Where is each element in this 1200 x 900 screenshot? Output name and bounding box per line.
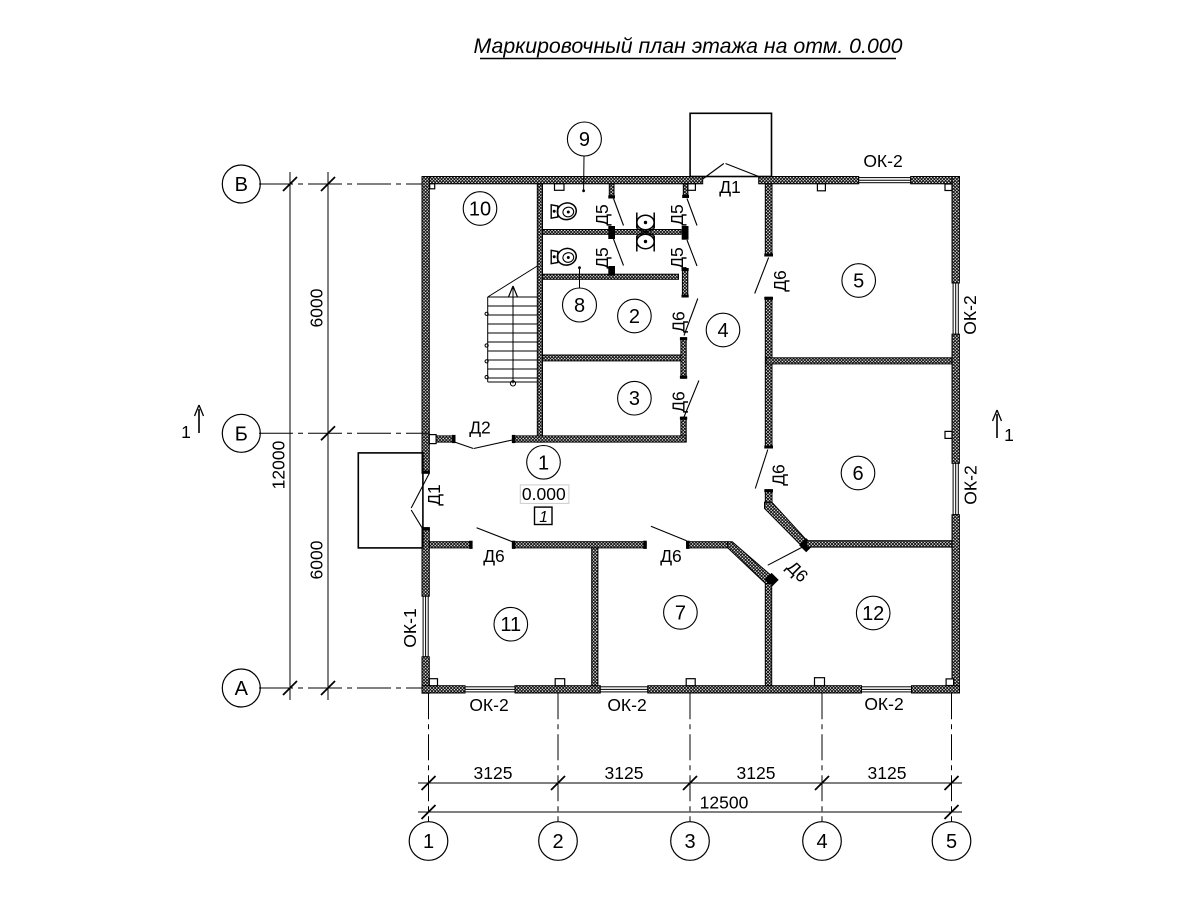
svg-text:6: 6 (852, 463, 863, 485)
svg-text:1: 1 (423, 831, 434, 853)
svg-text:ОК-2: ОК-2 (607, 695, 646, 715)
svg-text:Д6: Д6 (669, 311, 689, 333)
svg-text:4: 4 (717, 320, 728, 342)
svg-text:4: 4 (816, 831, 827, 853)
svg-text:Д5: Д5 (592, 204, 612, 226)
svg-text:Д6: Д6 (669, 391, 689, 413)
svg-text:Д2: Д2 (469, 418, 491, 438)
svg-text:Д5: Д5 (667, 204, 687, 226)
svg-text:12: 12 (862, 603, 884, 625)
svg-text:Д5: Д5 (592, 247, 612, 269)
svg-text:0.000: 0.000 (522, 484, 566, 504)
svg-text:7: 7 (675, 602, 686, 624)
svg-text:10: 10 (469, 199, 491, 221)
svg-text:Д6: Д6 (660, 546, 682, 566)
svg-text:1: 1 (538, 452, 549, 474)
svg-text:3125: 3125 (474, 763, 513, 783)
svg-text:5: 5 (946, 831, 957, 853)
svg-text:ОК-2: ОК-2 (864, 694, 903, 714)
svg-text:9: 9 (579, 129, 590, 151)
svg-text:8: 8 (574, 295, 585, 317)
svg-text:Д1: Д1 (719, 177, 741, 197)
svg-text:12500: 12500 (700, 793, 749, 813)
svg-text:Д6: Д6 (770, 270, 790, 292)
svg-text:2: 2 (629, 306, 640, 328)
svg-text:3125: 3125 (868, 763, 907, 783)
svg-text:1: 1 (1004, 425, 1014, 445)
svg-text:А: А (235, 678, 249, 700)
svg-text:Д5: Д5 (667, 247, 687, 269)
svg-text:Д6: Д6 (769, 464, 789, 486)
svg-text:3125: 3125 (737, 763, 776, 783)
svg-text:6000: 6000 (307, 540, 327, 579)
svg-text:Б: Б (235, 423, 248, 445)
svg-text:6000: 6000 (307, 288, 327, 327)
svg-text:12000: 12000 (269, 440, 289, 489)
svg-text:ОК-2: ОК-2 (961, 465, 981, 504)
svg-text:5: 5 (853, 271, 864, 293)
svg-text:Д1: Д1 (424, 484, 444, 506)
svg-text:11: 11 (500, 614, 521, 636)
svg-text:3: 3 (684, 831, 695, 853)
svg-text:3: 3 (629, 388, 640, 410)
svg-text:Маркировочный план этажа на от: Маркировочный план этажа на отм. 0.000 (474, 34, 903, 58)
svg-text:1: 1 (539, 509, 548, 526)
svg-text:ОК-2: ОК-2 (960, 295, 980, 334)
svg-text:1: 1 (181, 422, 191, 442)
svg-text:ОК-2: ОК-2 (469, 695, 508, 715)
svg-text:Д6: Д6 (483, 546, 505, 566)
svg-text:ОК-1: ОК-1 (400, 608, 420, 647)
svg-text:3125: 3125 (605, 763, 644, 783)
svg-text:ОК-2: ОК-2 (863, 151, 902, 171)
svg-text:В: В (235, 174, 248, 196)
svg-text:2: 2 (552, 831, 563, 853)
